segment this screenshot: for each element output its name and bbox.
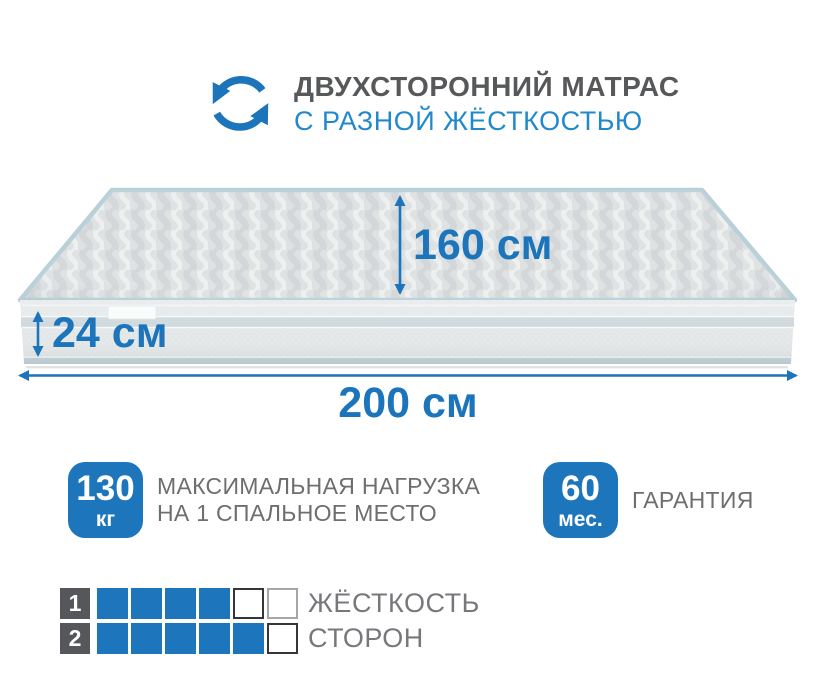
max-load-badge: 130 кг: [68, 462, 143, 538]
hardness-cell-filled: [165, 623, 196, 654]
warranty-label: ГАРАНТИЯ: [632, 487, 754, 514]
hardness-row-side1: 1 ЖЁСТКОСТЬ: [60, 588, 480, 619]
header-title: ДВУХСТОРОННИЙ МАТРАС: [294, 71, 680, 103]
header: ДВУХСТОРОННИЙ МАТРАС С РАЗНОЙ ЖЁСТКОСТЬЮ: [200, 62, 680, 144]
warranty-unit: мес.: [558, 509, 602, 530]
mattress-top-surface: [20, 190, 795, 300]
hardness-cell-filled: [97, 623, 128, 654]
hardness-cell-filled: [199, 588, 230, 619]
max-load-value: 130: [76, 471, 134, 506]
mattress-infographic: ДВУХСТОРОННИЙ МАТРАС С РАЗНОЙ ЖЁСТКОСТЬЮ: [0, 0, 816, 700]
hardness-chart: 1 ЖЁСТКОСТЬ 2 СТОРОН: [60, 588, 480, 658]
side2-cells: [97, 623, 298, 654]
dimension-length: 200 см: [338, 379, 477, 427]
warranty-feature: 60 мес. ГАРАНТИЯ: [543, 462, 754, 538]
side1-label: 1: [60, 588, 90, 619]
warranty-value: 60: [561, 471, 600, 506]
warranty-badge: 60 мес.: [543, 462, 618, 538]
hardness-cell-filled: [97, 588, 128, 619]
max-load-feature: 130 кг МАКСИМАЛЬНАЯ НАГРУЗКА НА 1 СПАЛЬН…: [68, 462, 480, 538]
dimension-top: 160 см: [413, 221, 552, 269]
hardness-caption-line1: ЖЁСТКОСТЬ: [308, 588, 480, 619]
header-text: ДВУХСТОРОННИЙ МАТРАС С РАЗНОЙ ЖЁСТКОСТЬЮ: [294, 62, 680, 137]
hardness-cell-empty-light: [267, 588, 298, 619]
hardness-row-side2: 2 СТОРОН: [60, 623, 480, 654]
mattress-diagram: 160 см 24 см 200 см: [0, 170, 816, 440]
hardness-cell-filled: [131, 588, 162, 619]
rotate-arrows-icon: [200, 64, 280, 144]
max-load-label: МАКСИМАЛЬНАЯ НАГРУЗКА НА 1 СПАЛЬНОЕ МЕСТ…: [157, 473, 480, 527]
dimension-height: 24 см: [52, 309, 168, 357]
header-subtitle: С РАЗНОЙ ЖЁСТКОСТЬЮ: [294, 106, 680, 137]
max-load-label-line1: МАКСИМАЛЬНАЯ НАГРУЗКА: [157, 473, 480, 500]
hardness-cell-filled: [165, 588, 196, 619]
hardness-cell-filled: [233, 623, 264, 654]
mattress-shadow: [26, 366, 788, 368]
warranty-label-line1: ГАРАНТИЯ: [632, 487, 754, 514]
side2-label: 2: [60, 623, 90, 654]
hardness-cell-filled: [199, 623, 230, 654]
hardness-cell-empty-dark: [233, 588, 264, 619]
hardness-caption-line2: СТОРОН: [308, 623, 424, 654]
max-load-unit: кг: [96, 509, 115, 530]
side1-cells: [97, 588, 298, 619]
hardness-cell-empty-dark: [267, 623, 298, 654]
hardness-cell-filled: [131, 623, 162, 654]
max-load-label-line2: НА 1 СПАЛЬНОЕ МЕСТО: [157, 500, 480, 527]
